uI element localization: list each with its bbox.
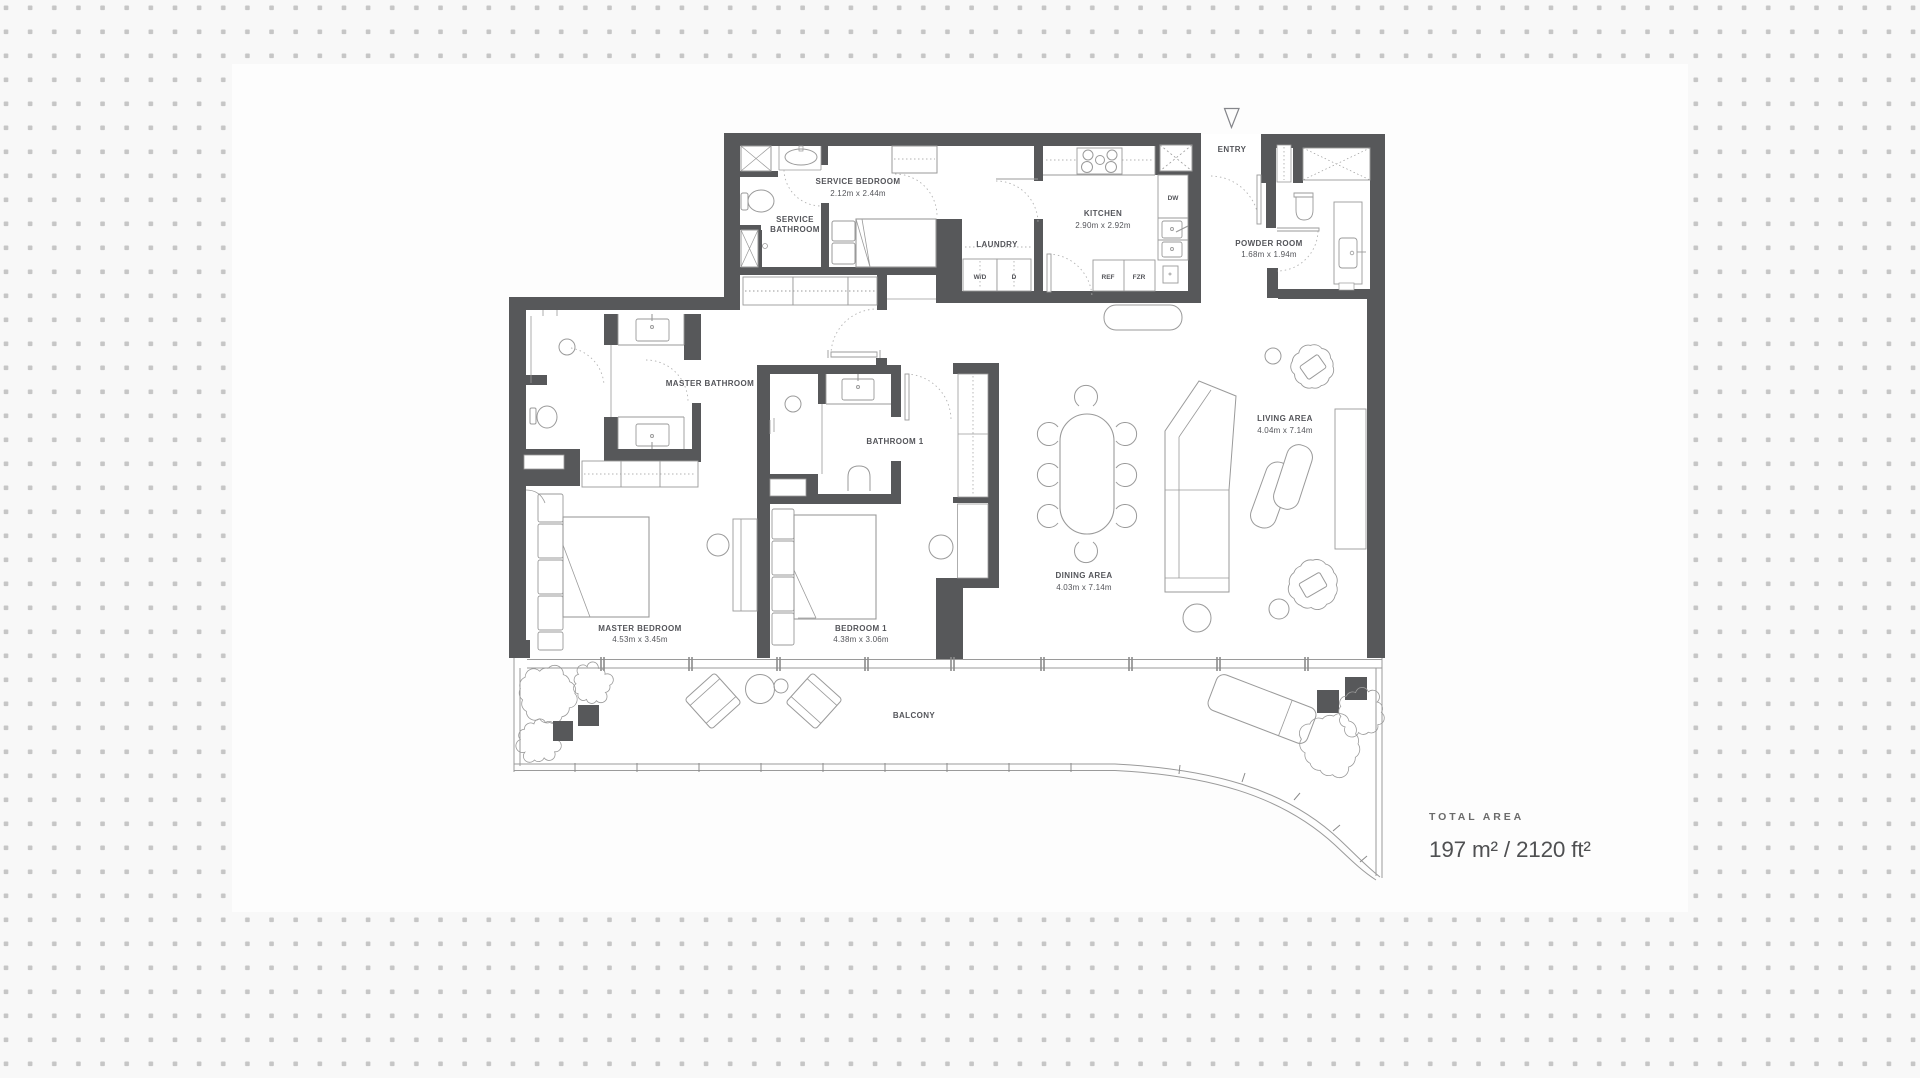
svg-text:2.90m x 2.92m: 2.90m x 2.92m	[1075, 221, 1131, 230]
svg-text:4.53m x 3.45m: 4.53m x 3.45m	[612, 635, 668, 644]
svg-text:SERVICE BEDROOM: SERVICE BEDROOM	[816, 177, 901, 186]
svg-text:TOTAL AREA: TOTAL AREA	[1429, 811, 1524, 823]
svg-text:LIVING AREA: LIVING AREA	[1257, 414, 1313, 423]
svg-text:FZR: FZR	[1133, 274, 1146, 281]
svg-text:DW: DW	[1168, 195, 1180, 202]
svg-text:DINING AREA: DINING AREA	[1056, 571, 1113, 580]
svg-text:4.04m x 7.14m: 4.04m x 7.14m	[1257, 426, 1313, 435]
svg-text:BALCONY: BALCONY	[893, 711, 936, 720]
svg-text:BATHROOM: BATHROOM	[770, 225, 820, 234]
svg-text:LAUNDRY: LAUNDRY	[976, 240, 1018, 249]
svg-text:2.12m x 2.44m: 2.12m x 2.44m	[830, 189, 886, 198]
svg-text:KITCHEN: KITCHEN	[1084, 209, 1122, 218]
svg-text:BATHROOM 1: BATHROOM 1	[866, 437, 923, 446]
svg-text:1.68m x 1.94m: 1.68m x 1.94m	[1241, 250, 1297, 259]
svg-text:MASTER BATHROOM: MASTER BATHROOM	[666, 379, 755, 388]
svg-text:REF: REF	[1102, 274, 1115, 281]
svg-text:SERVICE: SERVICE	[776, 215, 814, 224]
svg-text:4.03m x 7.14m: 4.03m x 7.14m	[1056, 583, 1112, 592]
svg-text:D: D	[1012, 274, 1017, 281]
svg-text:4.38m x 3.06m: 4.38m x 3.06m	[833, 635, 889, 644]
svg-text:ENTRY: ENTRY	[1218, 145, 1247, 154]
svg-text:POWDER ROOM: POWDER ROOM	[1235, 239, 1303, 248]
svg-text:197 m² / 2120 ft²: 197 m² / 2120 ft²	[1429, 837, 1591, 862]
svg-text:W/D: W/D	[974, 274, 987, 281]
svg-text:MASTER BEDROOM: MASTER BEDROOM	[598, 624, 681, 633]
svg-text:BEDROOM 1: BEDROOM 1	[835, 624, 887, 633]
